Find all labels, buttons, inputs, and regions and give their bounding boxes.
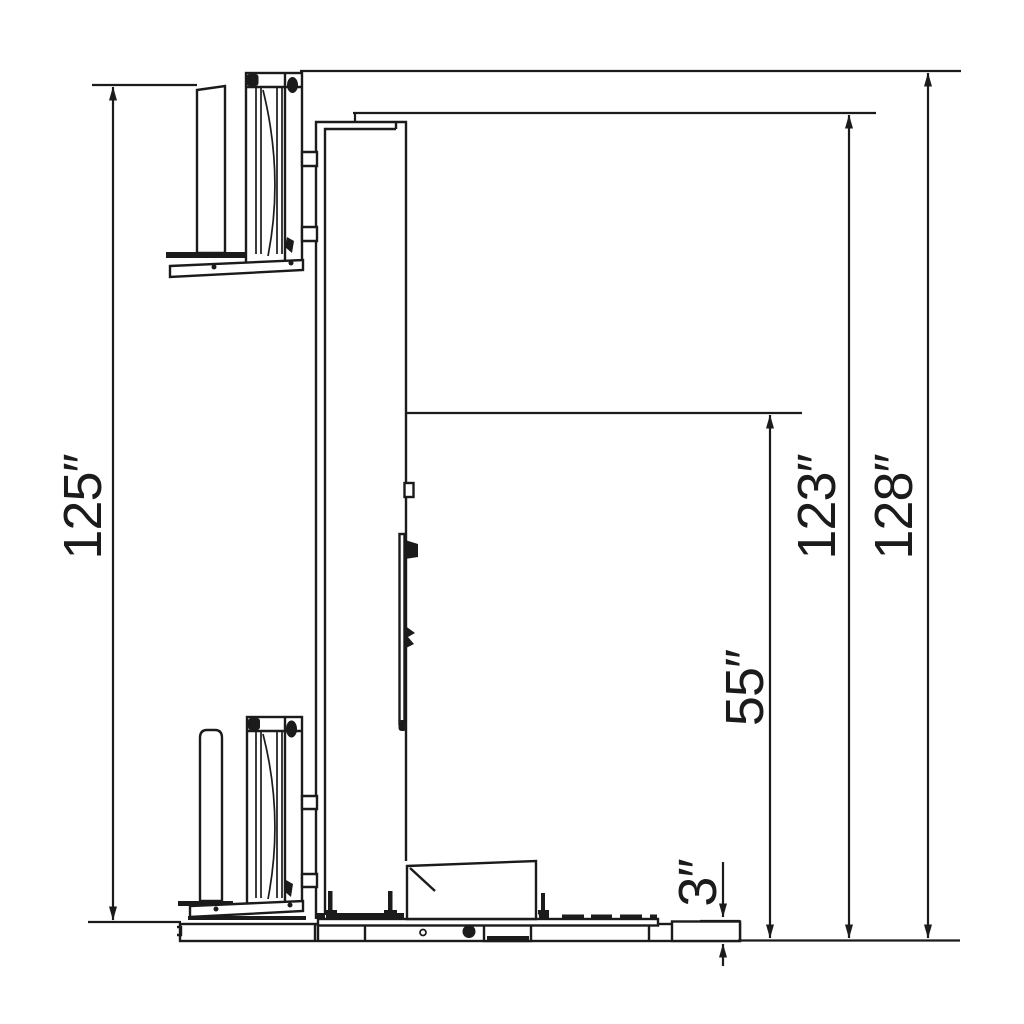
dim-123-extension-top <box>353 113 876 121</box>
dim-carriage-travel: 55″ <box>406 413 802 938</box>
upper-film-roll <box>197 86 225 253</box>
lower-plate-bolt <box>214 907 219 912</box>
upper-roller-end <box>247 74 259 86</box>
dim-overall-height-right: 128″ <box>300 71 961 938</box>
upper-frame-hole <box>287 77 298 93</box>
mast-outer-edge <box>316 122 406 919</box>
ramp-box <box>407 861 536 919</box>
lower-frame-hole <box>286 721 297 738</box>
dim-125-label: 125″ <box>53 454 113 560</box>
dim-55-label: 55″ <box>715 649 775 726</box>
lower-mount-brackets <box>302 796 317 887</box>
dimension-annotations: 125″ 128″ 123″ 55″ 3″ <box>53 71 961 966</box>
ramp-outline <box>407 861 536 919</box>
dim-128-label: 128″ <box>864 454 924 560</box>
upper-plate-bolt <box>212 265 217 270</box>
door-edge-strip <box>400 534 405 724</box>
upper-carriage-base-plate <box>170 260 303 277</box>
upper-plate-bolt <box>289 261 294 266</box>
dim-3-label: 3″ <box>668 859 728 907</box>
lower-plate-shadow <box>188 916 306 920</box>
upper-mount-brackets <box>302 152 317 241</box>
mast-latch <box>405 483 414 497</box>
lower-plate-bolt <box>288 903 293 908</box>
machine-outline <box>166 73 740 941</box>
door-handle <box>405 540 418 559</box>
base-right-foot <box>672 922 740 942</box>
caster-bar <box>487 936 529 941</box>
lower-film-roll <box>200 730 222 901</box>
dim-column-height: 123″ <box>353 113 876 938</box>
door-strip-cap <box>399 720 407 731</box>
upper-film-carriage <box>166 73 317 277</box>
mast-inner-edge <box>325 122 396 913</box>
base-drive-hub <box>463 925 476 938</box>
mast-column <box>316 122 418 919</box>
door-lock-mark <box>404 625 415 649</box>
stretch-wrapper-side-elevation: 125″ 128″ 123″ 55″ 3″ <box>0 0 1024 1024</box>
dim-123-label: 123″ <box>787 454 847 560</box>
lower-roller-end <box>248 718 260 730</box>
dim-overall-height-left: 125″ <box>53 85 197 922</box>
technical-drawing-page: 125″ 128″ 123″ 55″ 3″ <box>0 0 1024 1024</box>
dim-turntable-height: 3″ <box>668 859 740 966</box>
